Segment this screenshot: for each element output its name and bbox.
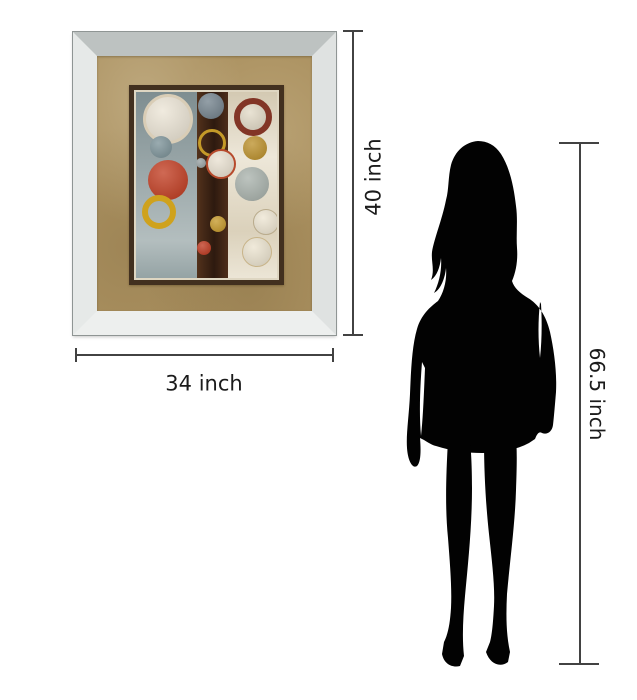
red-circle-small — [197, 241, 211, 255]
person-height-label: 66.5 inch — [587, 348, 607, 441]
steel-circle — [235, 167, 269, 201]
outline-circle-lower — [242, 237, 272, 267]
tiny-gray-circle — [196, 158, 206, 168]
yellow-ring — [142, 195, 176, 229]
abstract-circles-artwork — [136, 92, 277, 278]
mirror-frame — [73, 32, 336, 335]
art-inner-border — [129, 85, 284, 285]
red-circle — [148, 160, 188, 200]
frame-width-label: 34 inch — [165, 374, 242, 395]
height-dimension-line — [352, 30, 354, 336]
size-comparison-image: 40 inch 34 inch 66.5 inch — [0, 0, 637, 700]
slate-circle-top — [198, 93, 224, 119]
person-height-cap-top — [559, 142, 599, 144]
height-dimension-cap-top — [343, 30, 363, 32]
height-dimension-cap-bottom — [343, 334, 363, 336]
silhouette-body — [407, 141, 556, 467]
slate-circle — [150, 136, 172, 158]
silhouette-legs — [442, 438, 517, 667]
large-cream-circle — [143, 94, 193, 144]
gold-circle — [243, 136, 267, 160]
mat-board — [97, 56, 312, 311]
frame-height-label: 40 inch — [364, 138, 385, 215]
person-height-dimension-line — [579, 142, 581, 665]
width-dimension-cap-right — [332, 348, 334, 362]
woman-silhouette — [402, 140, 570, 668]
cream-red-ring-circle — [206, 149, 236, 179]
gold-circle-small — [210, 216, 226, 232]
person-height-cap-bottom — [559, 663, 599, 665]
width-dimension-line — [75, 354, 334, 356]
maroon-ring — [234, 98, 272, 136]
width-dimension-cap-left — [75, 348, 77, 362]
outline-circle-upper — [253, 209, 277, 235]
